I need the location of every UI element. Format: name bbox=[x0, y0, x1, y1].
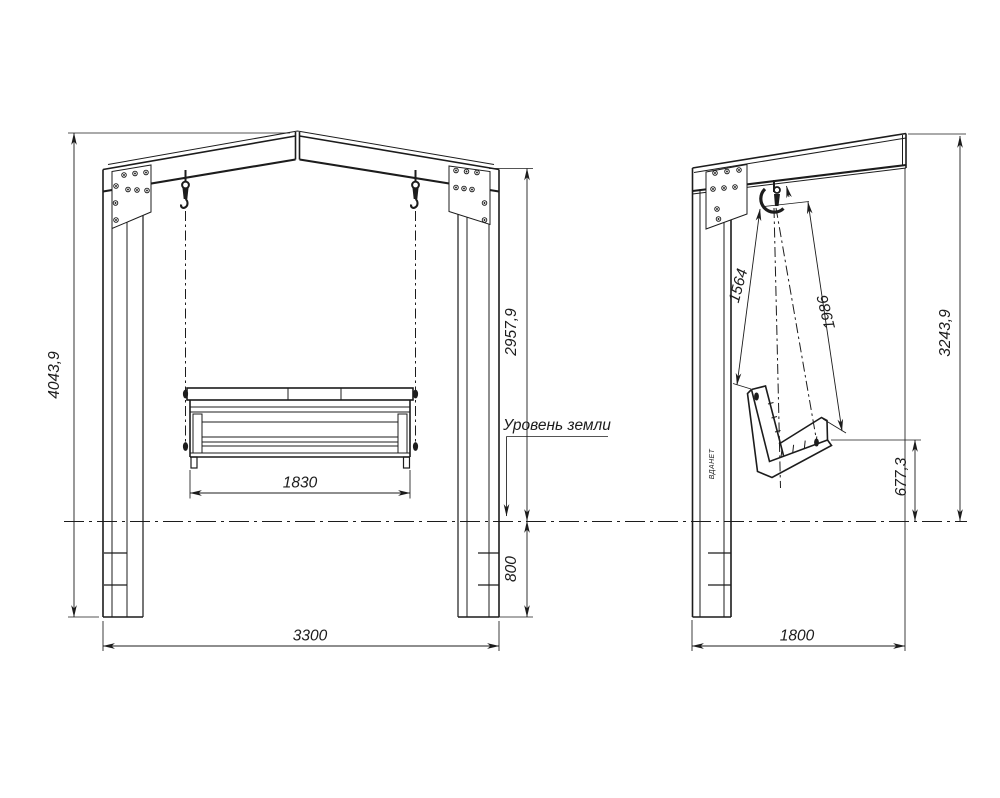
ground-level-callout: Уровень земли bbox=[502, 417, 611, 516]
dim-clearance-height-label: 2957,9 bbox=[503, 308, 520, 357]
front-view: 4043,9 2957,9 800 1830 3300 Уровень земл… bbox=[46, 131, 611, 651]
dim-back-chain-label: 1564 bbox=[726, 267, 751, 305]
chain-hanger-hook-right bbox=[411, 170, 419, 208]
side-post: ВДАНЕТ bbox=[693, 168, 732, 617]
dim-overall-depth-label: 1800 bbox=[780, 628, 815, 645]
side-chain-centerline bbox=[774, 208, 781, 488]
front-left-gusset-plate bbox=[112, 165, 151, 229]
dim-frame-height-label: 3243,9 bbox=[937, 309, 954, 357]
swing-bench-front bbox=[183, 388, 418, 468]
post-brand-label: ВДАНЕТ bbox=[709, 448, 716, 479]
dim-overall-width-label: 3300 bbox=[293, 628, 328, 645]
swing-seat-side bbox=[748, 386, 832, 478]
front-right-post bbox=[458, 170, 499, 618]
swing-arc bbox=[761, 189, 784, 212]
side-gusset-plate bbox=[706, 165, 747, 230]
front-roof-beams bbox=[103, 131, 499, 192]
dim-overall-height-label: 4043,9 bbox=[46, 351, 63, 399]
bench-foot-right bbox=[404, 457, 410, 468]
dim-front-chain-label: 1986 bbox=[814, 293, 839, 331]
chain-hanger-hook-left bbox=[181, 170, 189, 208]
dim-buried-depth-label: 800 bbox=[503, 556, 520, 582]
side-view: ВДАНЕТ bbox=[692, 134, 966, 652]
technical-drawing-canvas: 4043,9 2957,9 800 1830 3300 Уровень земл… bbox=[0, 0, 1000, 798]
dim-seat-height-label: 677,3 bbox=[893, 457, 910, 496]
front-right-gusset-plate bbox=[449, 166, 490, 225]
front-left-post bbox=[103, 170, 143, 618]
bench-foot-left bbox=[191, 457, 197, 468]
ground-level-label: Уровень земли bbox=[502, 417, 611, 434]
swing-assembly-drawing: 4043,9 2957,9 800 1830 3300 Уровень земл… bbox=[0, 0, 1000, 798]
dim-bench-width-label: 1830 bbox=[283, 475, 318, 492]
side-chain-front bbox=[776, 208, 818, 446]
